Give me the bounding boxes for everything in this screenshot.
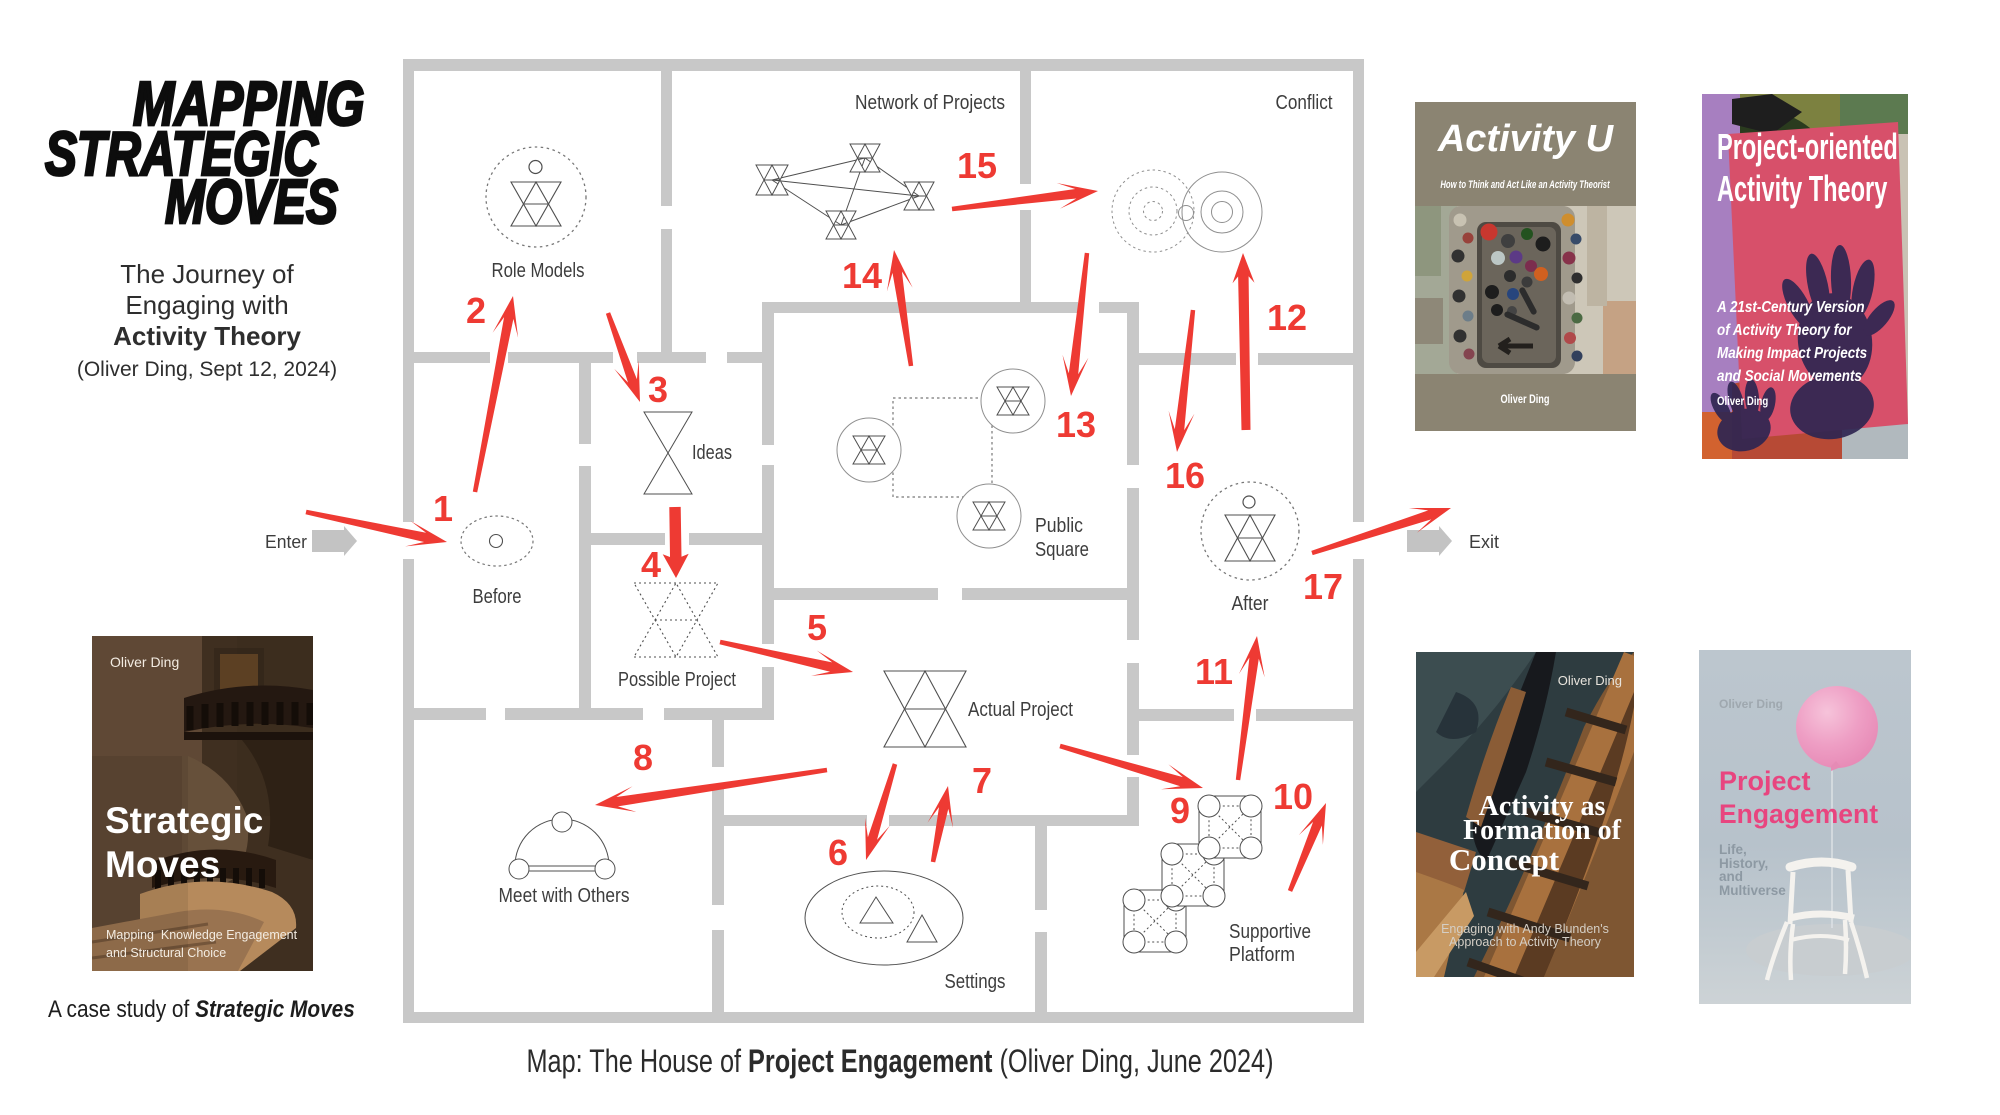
svg-text:Role Models: Role Models xyxy=(492,260,585,282)
svg-text:Platform: Platform xyxy=(1229,944,1295,966)
svg-text:Network of Projects: Network of Projects xyxy=(855,92,1005,114)
svg-text:Settings: Settings xyxy=(945,971,1006,993)
svg-text:8: 8 xyxy=(633,737,653,778)
svg-text:After: After xyxy=(1232,593,1269,615)
svg-text:Before: Before xyxy=(473,586,522,608)
svg-text:Possible Project: Possible Project xyxy=(618,669,736,691)
svg-text:1: 1 xyxy=(433,488,453,529)
svg-text:3: 3 xyxy=(648,369,668,410)
svg-text:10: 10 xyxy=(1273,776,1313,817)
svg-text:11: 11 xyxy=(1195,651,1233,692)
svg-text:Actual Project: Actual Project xyxy=(968,699,1073,721)
svg-text:13: 13 xyxy=(1056,404,1096,445)
svg-text:Ideas: Ideas xyxy=(692,442,732,464)
svg-text:Public: Public xyxy=(1035,515,1083,537)
svg-text:4: 4 xyxy=(641,544,661,585)
svg-text:Square: Square xyxy=(1035,539,1089,561)
svg-text:7: 7 xyxy=(972,760,992,801)
svg-text:14: 14 xyxy=(842,255,882,296)
svg-text:6: 6 xyxy=(828,832,848,873)
svg-text:5: 5 xyxy=(807,607,827,648)
svg-text:Exit: Exit xyxy=(1469,532,1499,552)
svg-text:12: 12 xyxy=(1267,297,1307,338)
svg-text:17: 17 xyxy=(1303,566,1343,607)
svg-text:16: 16 xyxy=(1165,455,1205,496)
svg-text:Supportive: Supportive xyxy=(1229,921,1311,943)
svg-text:9: 9 xyxy=(1170,790,1190,831)
svg-text:Conflict: Conflict xyxy=(1276,92,1333,114)
svg-text:15: 15 xyxy=(957,145,997,186)
svg-text:Enter: Enter xyxy=(265,532,307,552)
svg-text:Meet with Others: Meet with Others xyxy=(499,885,630,907)
svg-text:2: 2 xyxy=(466,290,486,331)
